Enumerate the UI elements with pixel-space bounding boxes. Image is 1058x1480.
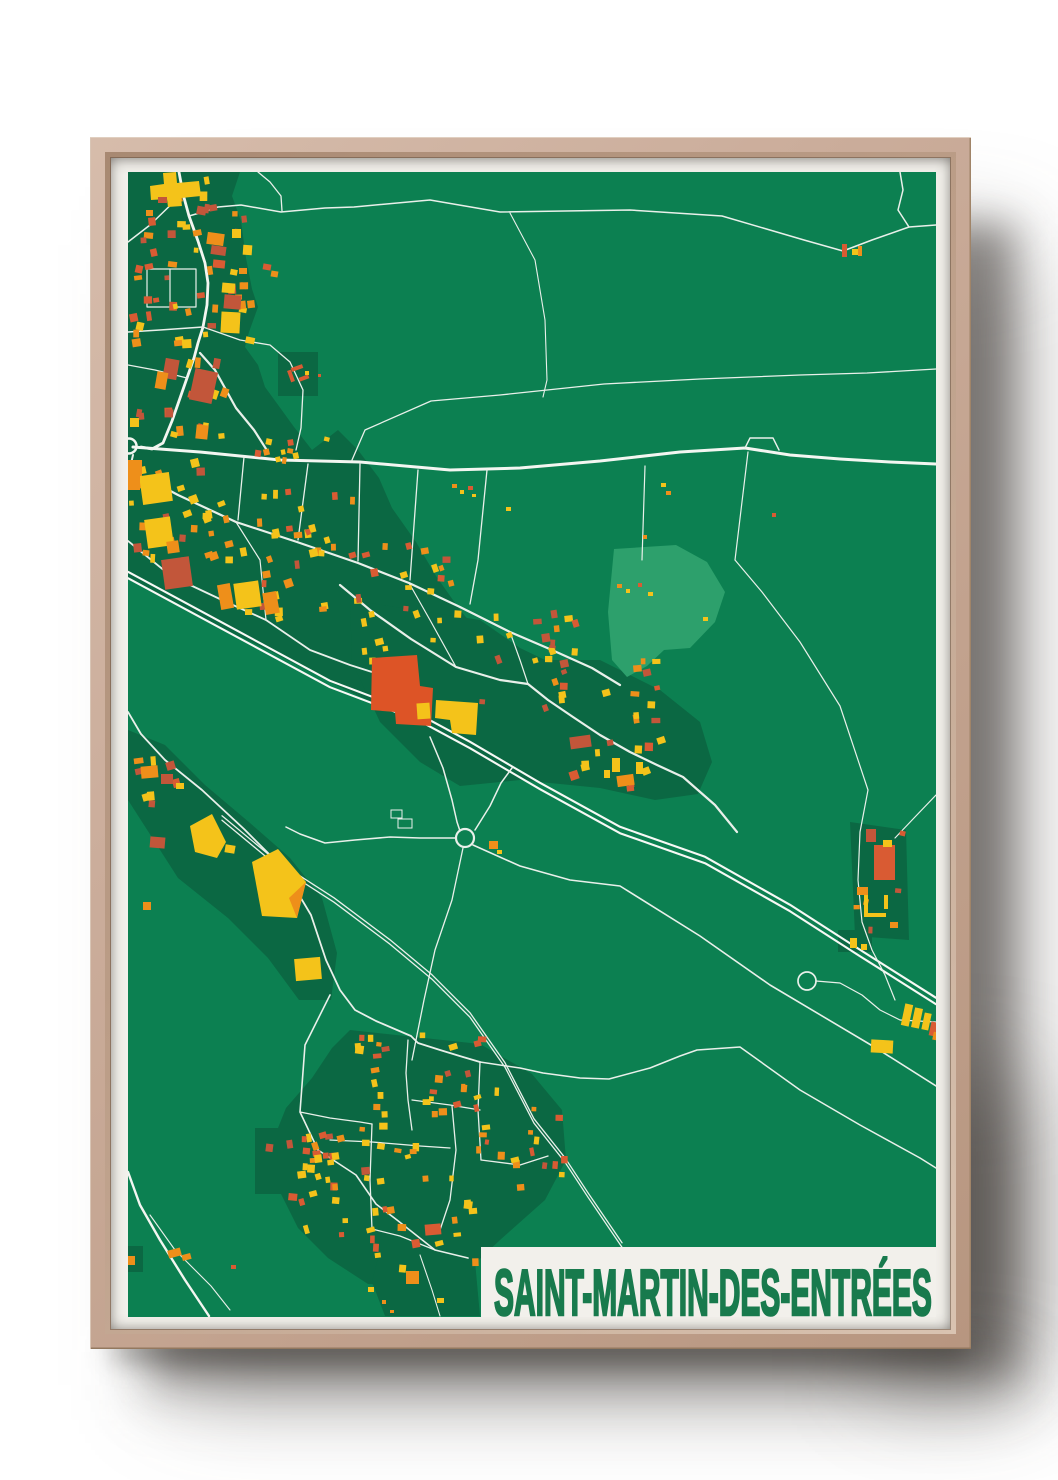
svg-text:SAINT-MARTIN-DES-ENTRÉES: SAINT-MARTIN-DES-ENTRÉES bbox=[494, 1256, 932, 1317]
